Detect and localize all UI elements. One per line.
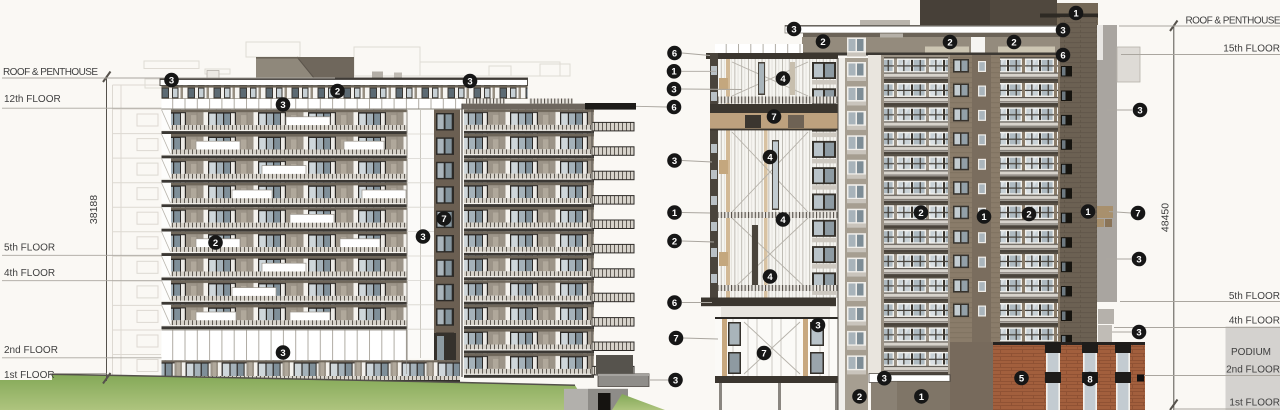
svg-text:1: 1 [919,392,925,403]
svg-text:3: 3 [1137,105,1142,116]
svg-text:3: 3 [1136,327,1141,338]
svg-text:2: 2 [213,238,218,249]
svg-text:3: 3 [169,75,174,86]
svg-text:7: 7 [771,112,776,123]
svg-text:6: 6 [672,48,677,59]
svg-text:48450: 48450 [1160,203,1172,232]
svg-text:3: 3 [467,76,472,87]
svg-text:7: 7 [761,348,766,359]
svg-text:3: 3 [420,232,425,243]
svg-text:1: 1 [981,212,987,223]
svg-text:2: 2 [672,236,677,247]
svg-text:1: 1 [1073,8,1079,19]
svg-text:12th FLOOR: 12th FLOOR [4,94,61,105]
svg-text:3: 3 [672,156,677,167]
svg-text:ROOF & PENTHOUSE: ROOF & PENTHOUSE [1185,15,1280,26]
svg-text:3: 3 [671,84,676,95]
svg-text:1: 1 [1085,207,1091,218]
svg-text:1st FLOOR: 1st FLOOR [1229,398,1280,409]
svg-text:5: 5 [1019,373,1025,384]
svg-text:2nd FLOOR: 2nd FLOOR [4,345,58,356]
svg-text:3: 3 [815,320,820,331]
svg-text:38188: 38188 [88,195,100,224]
svg-text:4: 4 [780,215,786,226]
svg-text:3: 3 [791,24,796,35]
svg-text:2: 2 [1011,37,1016,48]
svg-text:2: 2 [820,37,825,48]
svg-text:6: 6 [671,102,676,113]
svg-text:1st FLOOR: 1st FLOOR [4,370,55,381]
svg-text:2: 2 [857,392,862,403]
svg-text:6: 6 [672,298,677,309]
svg-text:2nd FLOOR: 2nd FLOOR [1226,365,1280,376]
svg-text:3: 3 [1136,254,1141,265]
svg-text:1: 1 [671,67,677,78]
svg-text:2: 2 [335,86,340,97]
svg-text:3: 3 [280,100,285,111]
svg-text:3: 3 [280,348,285,359]
svg-text:3: 3 [673,375,678,386]
svg-text:2: 2 [947,37,952,48]
svg-text:6: 6 [1060,50,1065,61]
svg-text:5th FLOOR: 5th FLOOR [1229,291,1280,302]
svg-text:4: 4 [780,74,786,85]
svg-text:3: 3 [1060,25,1065,36]
svg-text:1: 1 [672,208,678,219]
svg-text:3: 3 [882,374,887,385]
svg-text:2: 2 [918,208,923,219]
svg-text:ROOF & PENTHOUSE: ROOF & PENTHOUSE [3,67,98,78]
svg-text:2: 2 [1026,209,1031,220]
svg-text:7: 7 [1135,208,1140,219]
svg-text:4th FLOOR: 4th FLOOR [1229,315,1280,326]
svg-text:15th FLOOR: 15th FLOOR [1223,44,1280,55]
svg-text:4: 4 [767,272,773,283]
svg-text:7: 7 [441,214,446,225]
svg-text:4: 4 [767,152,773,163]
svg-text:5th FLOOR: 5th FLOOR [4,242,55,253]
svg-text:7: 7 [673,333,678,344]
svg-text:PODIUM: PODIUM [1231,347,1271,358]
svg-text:8: 8 [1087,374,1092,385]
svg-text:4th FLOOR: 4th FLOOR [4,268,55,279]
